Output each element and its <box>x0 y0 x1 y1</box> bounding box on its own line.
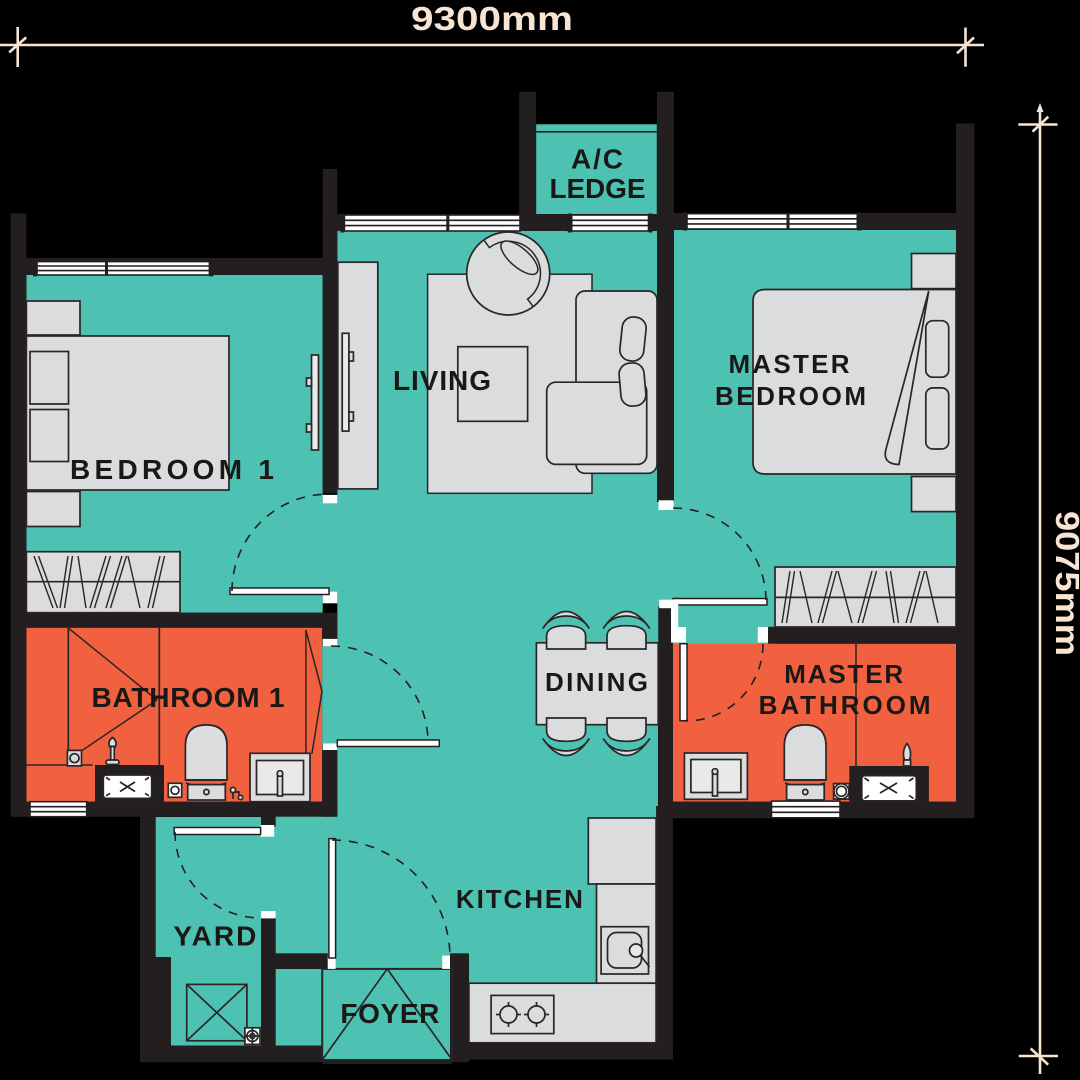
svg-text:MASTER: MASTER <box>729 349 850 379</box>
svg-text:LIVING: LIVING <box>393 365 491 396</box>
svg-text:A/C: A/C <box>571 144 623 175</box>
svg-text:BEDROOM: BEDROOM <box>715 381 866 411</box>
svg-text:MASTER: MASTER <box>784 659 903 689</box>
svg-text:BATHROOM: BATHROOM <box>759 690 931 720</box>
svg-text:YARD: YARD <box>173 921 256 952</box>
svg-text:LEDGE: LEDGE <box>550 173 646 204</box>
svg-text:FOYER: FOYER <box>340 998 439 1029</box>
svg-text:9075mm: 9075mm <box>1049 511 1080 656</box>
svg-text:DINING: DINING <box>545 667 648 697</box>
svg-text:BATHROOM 1: BATHROOM 1 <box>92 682 285 713</box>
svg-text:9300mm: 9300mm <box>411 0 573 37</box>
